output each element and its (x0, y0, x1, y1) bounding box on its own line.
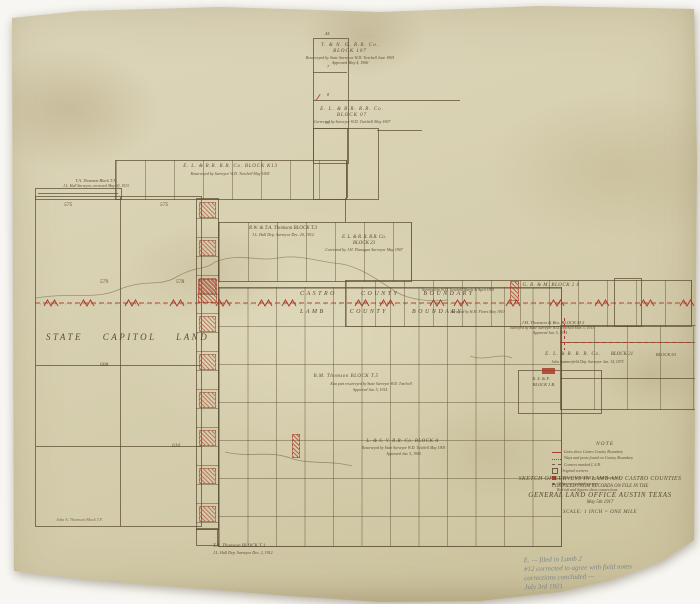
legend-text: Ways and posts found on County Boundary (564, 455, 633, 460)
map-title-line2: COMPILED FROM RECORDS ON FILE IN THE (502, 484, 698, 489)
legend-symbol-square (552, 468, 558, 474)
map-title-line1: SKETCH OF SURVEYS IN LAMB AND CASTRO COU… (502, 476, 698, 482)
map-title-line3: GENERAL LAND OFFICE AUSTIN TEXAS (502, 491, 698, 499)
survey-map-paper: 44 7 8 10 T. & N. O. R.R. Co. BLOCK 107 … (0, 0, 700, 604)
title-block: SKETCH OF SURVEYS IN LAMB AND CASTRO COU… (502, 476, 698, 515)
legend-symbol-red-line (552, 452, 561, 453)
creek-line (470, 356, 512, 358)
legend-text: Corners marked L.S.B. (564, 462, 601, 467)
legend-symbol-ink-dash (552, 464, 561, 465)
legend-text: Original corners (561, 468, 588, 473)
creek-line (225, 452, 352, 466)
legend-text: Lines show Castro County Boundary (564, 449, 623, 454)
note-heading: NOTE (596, 441, 614, 447)
map-title-date: May 5th 1917 (502, 500, 698, 505)
creek-line (342, 264, 448, 301)
creek-line (36, 257, 342, 298)
map-scale: SCALE: 1 INCH = ONE MILE (502, 510, 698, 515)
legend-symbol-red-zigzag (552, 457, 561, 460)
paper-shadow-wrap: 44 7 8 10 T. & N. O. R.R. Co. BLOCK 107 … (0, 0, 700, 604)
handwritten-annotation: E. — filed in Lamb 2#12 corrected to agr… (524, 552, 693, 593)
photo-backdrop: 44 7 8 10 T. & N. O. R.R. Co. BLOCK 107 … (0, 0, 700, 604)
